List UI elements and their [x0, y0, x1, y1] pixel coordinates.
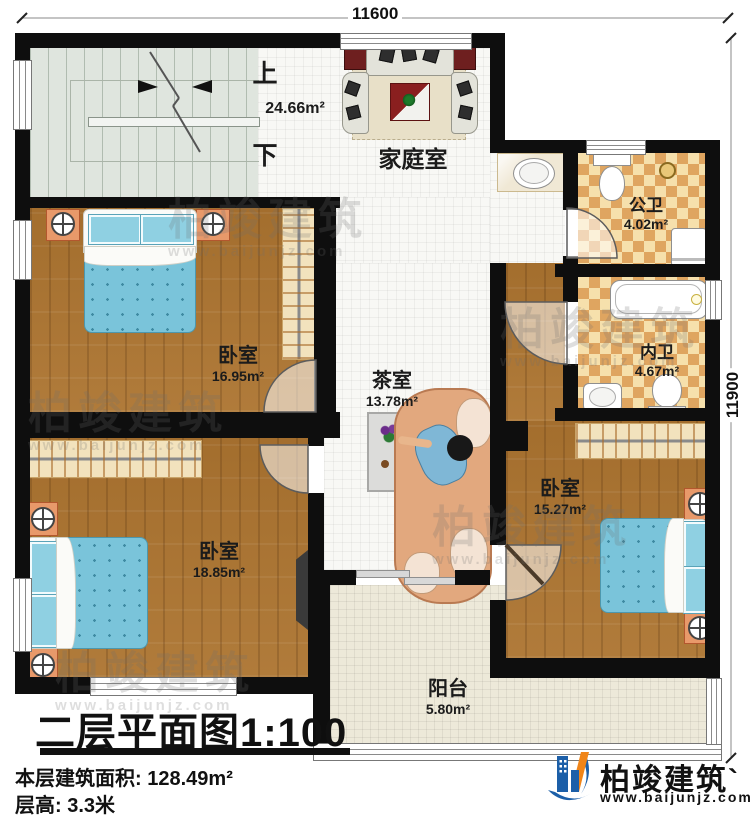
wall-pvtbath-left-a	[563, 277, 578, 302]
window-bedroom1	[13, 220, 32, 280]
bed-sheet-fold	[56, 537, 76, 649]
pillow	[30, 542, 58, 594]
lamp	[31, 507, 55, 531]
tv	[296, 550, 308, 630]
wall-notch	[490, 33, 505, 145]
floor-area-row: 本层建筑面积: 128.49m²	[15, 762, 233, 791]
lamp	[31, 653, 55, 677]
window-staircase	[13, 60, 32, 130]
toilet-bowl	[652, 374, 682, 408]
wardrobe	[575, 423, 710, 459]
watermark: 柏竣建筑 www.baijunjz.com	[432, 506, 632, 570]
watermark: 柏竣建筑 www.baijunjz.com	[168, 198, 368, 262]
bedroom-bottom-left-label: 卧室 18.85m²	[179, 541, 259, 580]
sliding-door-panel	[356, 570, 410, 578]
family-room-name: 家庭室	[368, 146, 458, 172]
tea-room-label: 茶室 13.78m²	[352, 370, 432, 409]
sliding-door-panel	[404, 577, 458, 585]
sofa-cushion	[458, 105, 473, 120]
tea-dish	[381, 460, 389, 468]
wall-bedroom2-right-top	[308, 438, 324, 446]
wall-bath-divider	[555, 264, 720, 277]
wall-pvtbath-bottom	[555, 408, 720, 421]
family-room-area: 24.66m²	[255, 100, 335, 118]
table-plant	[402, 93, 416, 107]
sink-inner	[589, 387, 616, 407]
wall-tearoom-bottom-a	[313, 570, 356, 585]
dimension-top: 11600	[348, 4, 402, 24]
dimension-right: 11900	[723, 368, 743, 422]
watermark: 柏竣建筑 www.baijunjz.com	[28, 392, 228, 456]
pillow	[89, 215, 141, 244]
washing-machine	[671, 228, 707, 267]
floor-height-row: 层高: 3.3米	[15, 789, 115, 817]
window-family-room	[340, 33, 472, 50]
bed-sheet-fold	[664, 518, 684, 613]
wall-tearoom-bottom-b	[455, 570, 490, 585]
wall-pubbath-left-b	[563, 256, 578, 266]
stair-rail	[88, 117, 260, 127]
bedroom-top-left-label: 卧室 16.95m²	[198, 345, 278, 384]
stair-down-label: 下	[248, 142, 282, 171]
floor-plan: 上 24.66m² 下 家庭室 公卫 4.02m² 内卫 4.67m² 卧室 1…	[0, 0, 750, 817]
watermark: 柏竣建筑 www.baijunjz.com	[500, 308, 700, 372]
brand-logo-icon	[543, 748, 595, 808]
person-head	[447, 435, 473, 461]
stair-up-label: 上	[248, 60, 282, 89]
lamp	[51, 212, 75, 236]
basin-inner	[519, 162, 549, 184]
window-bathtub	[705, 280, 722, 320]
pillow	[30, 595, 58, 647]
wall-tearoom-right-b	[490, 600, 506, 658]
title-underline	[40, 748, 350, 755]
window-public-bathroom	[586, 140, 646, 155]
public-bathroom-label: 公卫 4.02m²	[606, 196, 686, 232]
wall-bedroom3-corner	[506, 421, 528, 451]
wall-pubbath-left-a	[563, 150, 578, 210]
brand-website: www.baijunjz.com	[600, 789, 750, 805]
wall-bedroom3-bottom	[490, 658, 720, 678]
balcony-railing-right	[706, 678, 722, 745]
window-bedroom2	[13, 578, 32, 652]
ceiling-lamp	[659, 162, 676, 179]
balcony-label: 阳台 5.80m²	[408, 678, 488, 717]
sofa-left	[342, 72, 369, 134]
bathtub-drain	[691, 294, 702, 305]
